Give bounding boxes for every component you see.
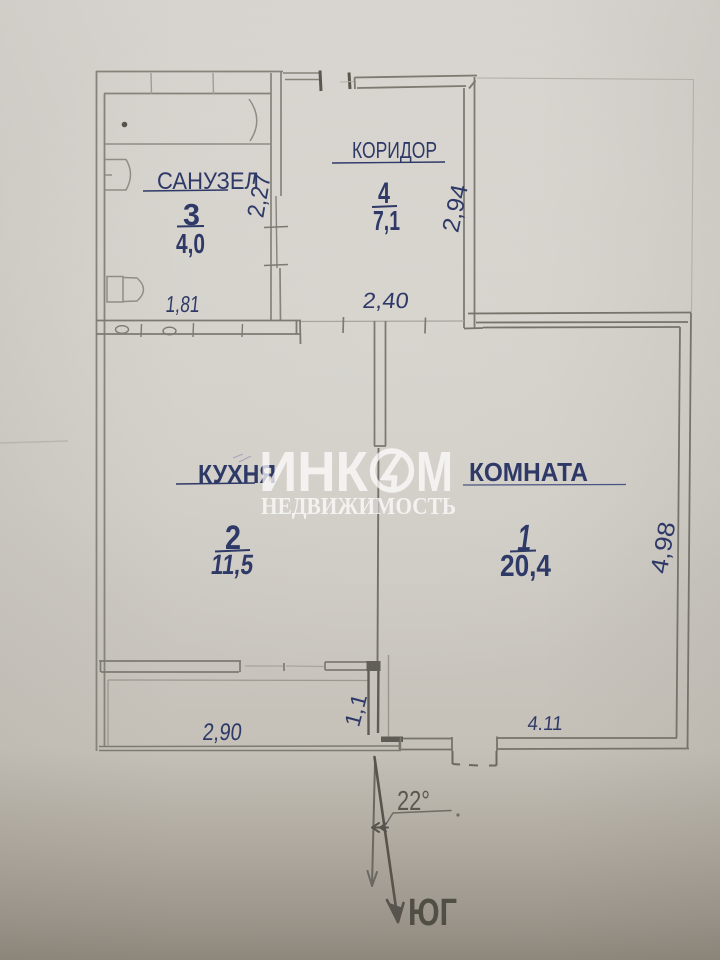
svg-text:4,0: 4,0 <box>176 228 205 259</box>
svg-text:22°: 22° <box>397 785 430 816</box>
svg-text:КОМНАТА: КОМНАТА <box>469 457 588 487</box>
svg-text:2,40: 2,40 <box>361 288 410 313</box>
svg-text:НЕДВИЖИМОСТЬ: НЕДВИЖИМОСТЬ <box>261 494 456 520</box>
svg-text:20,4: 20,4 <box>500 548 552 583</box>
svg-text:2,90: 2,90 <box>201 719 243 746</box>
svg-text:ЮГ: ЮГ <box>408 892 457 934</box>
svg-text:4.11: 4.11 <box>526 713 563 735</box>
svg-text:1,81: 1,81 <box>164 291 201 317</box>
svg-text:КОРИДОР: КОРИДОР <box>352 137 437 163</box>
svg-text:7,1: 7,1 <box>373 205 400 236</box>
svg-text:11,5: 11,5 <box>209 549 255 580</box>
